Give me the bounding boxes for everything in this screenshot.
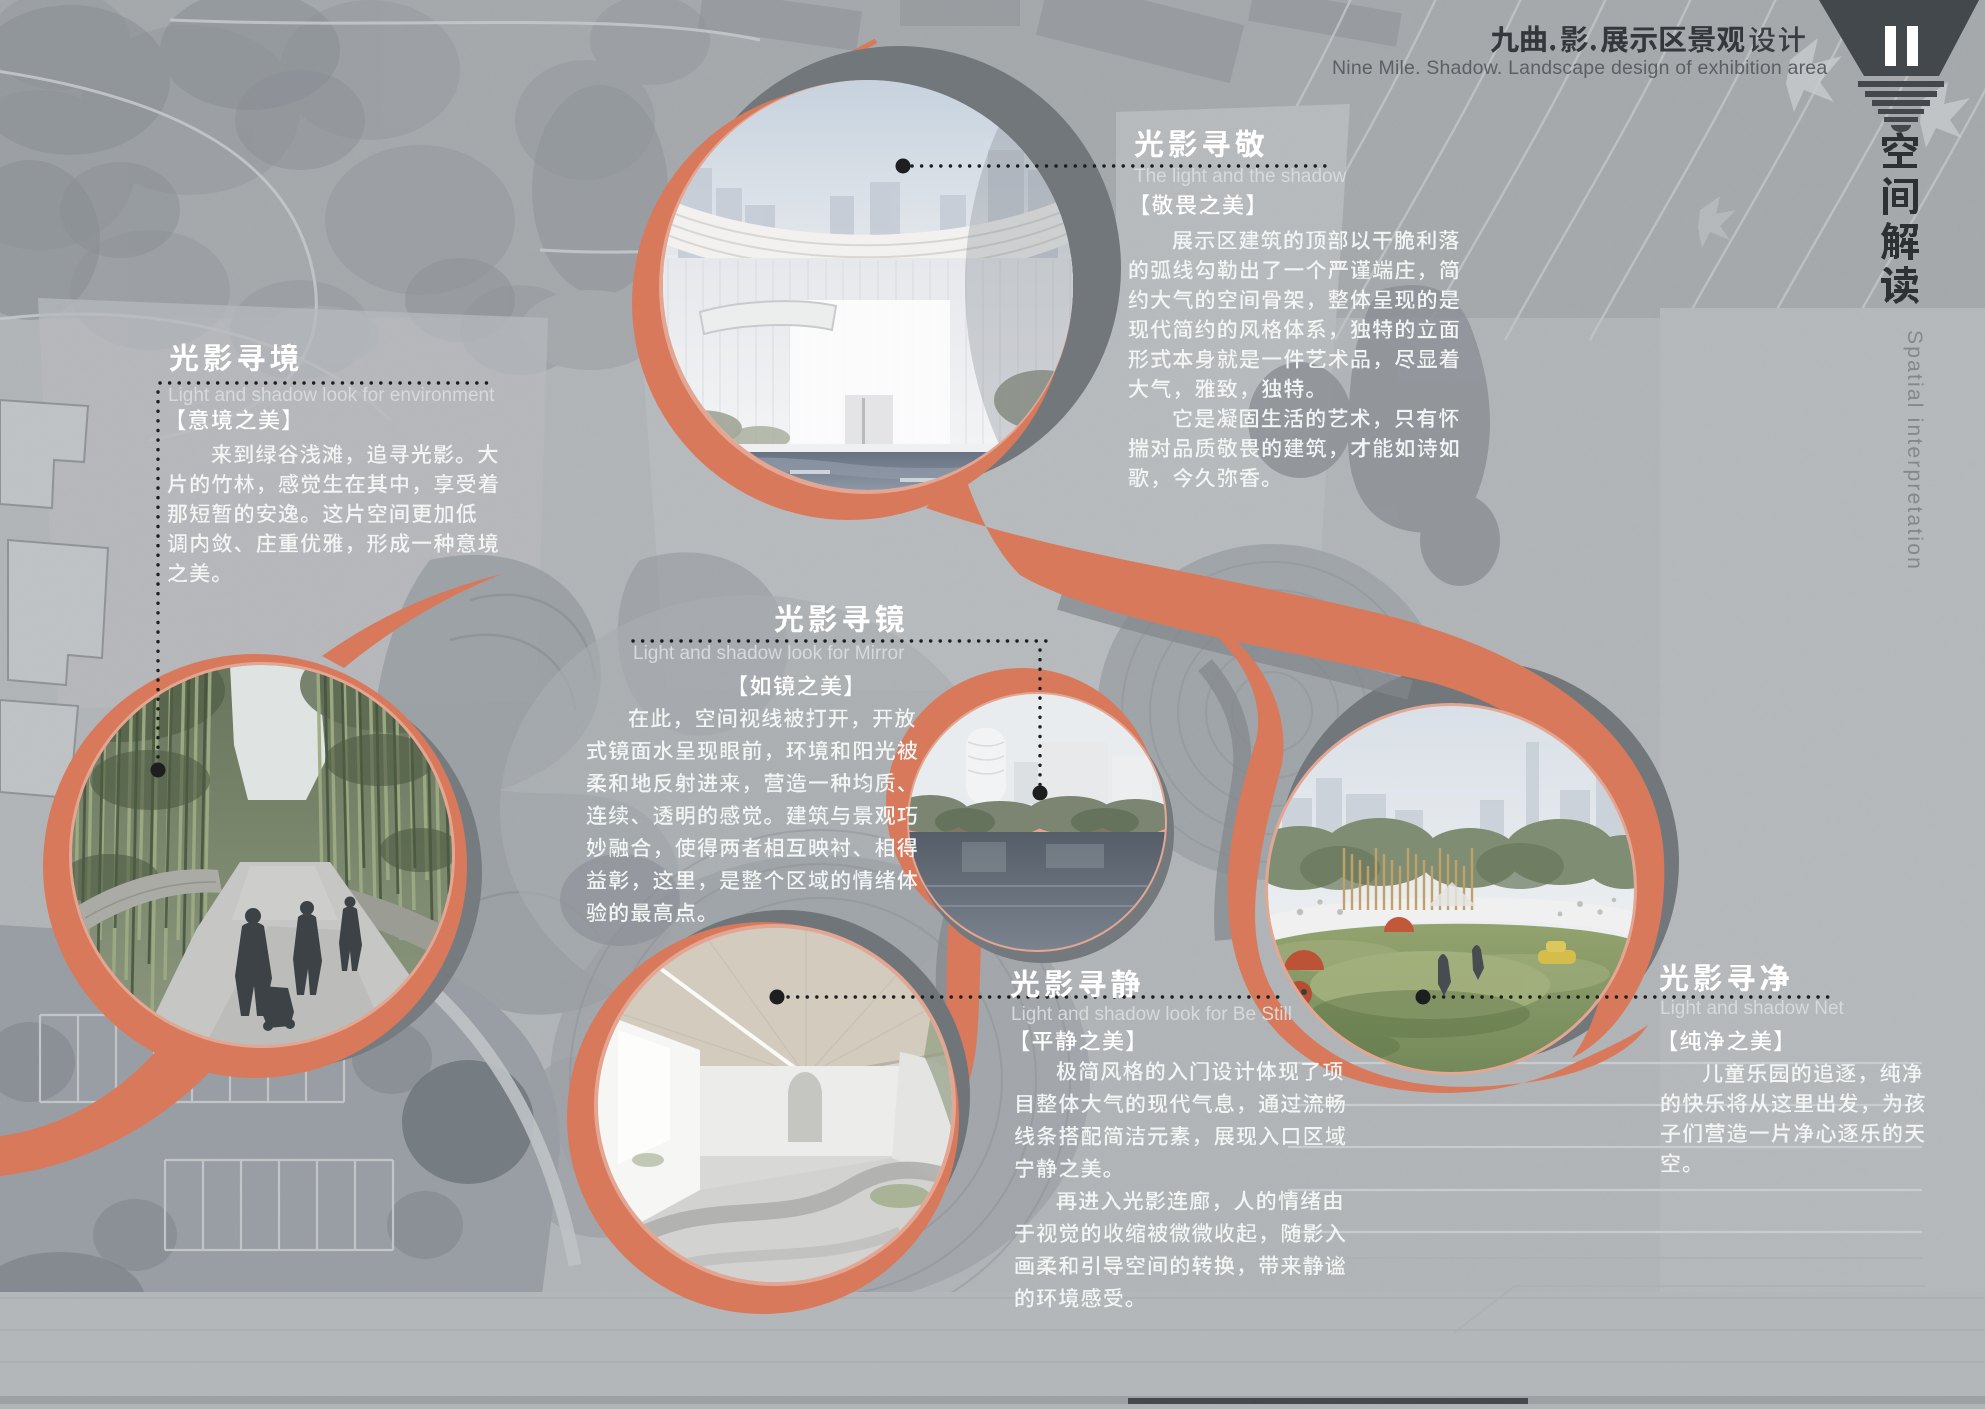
- svg-text:Light and shadow look for Mir: Light and shadow look for Mirror: [633, 643, 905, 664]
- svg-text:Light and shadow look for envi: Light and shadow look for environment: [168, 385, 495, 406]
- svg-text:Spatial interpretation: Spatial interpretation: [1903, 330, 1926, 571]
- svg-text:Nine Mile. Shadow. Landscape d: Nine Mile. Shadow. Landscape design of e…: [1332, 57, 1827, 79]
- svg-text:Light and shadow look for Be S: Light and shadow look for Be Still: [1011, 1004, 1292, 1025]
- svg-text:The light and the shadow: The light and the shadow: [1134, 166, 1347, 187]
- svg-text:Light and shadow Net: Light and shadow Net: [1660, 998, 1845, 1019]
